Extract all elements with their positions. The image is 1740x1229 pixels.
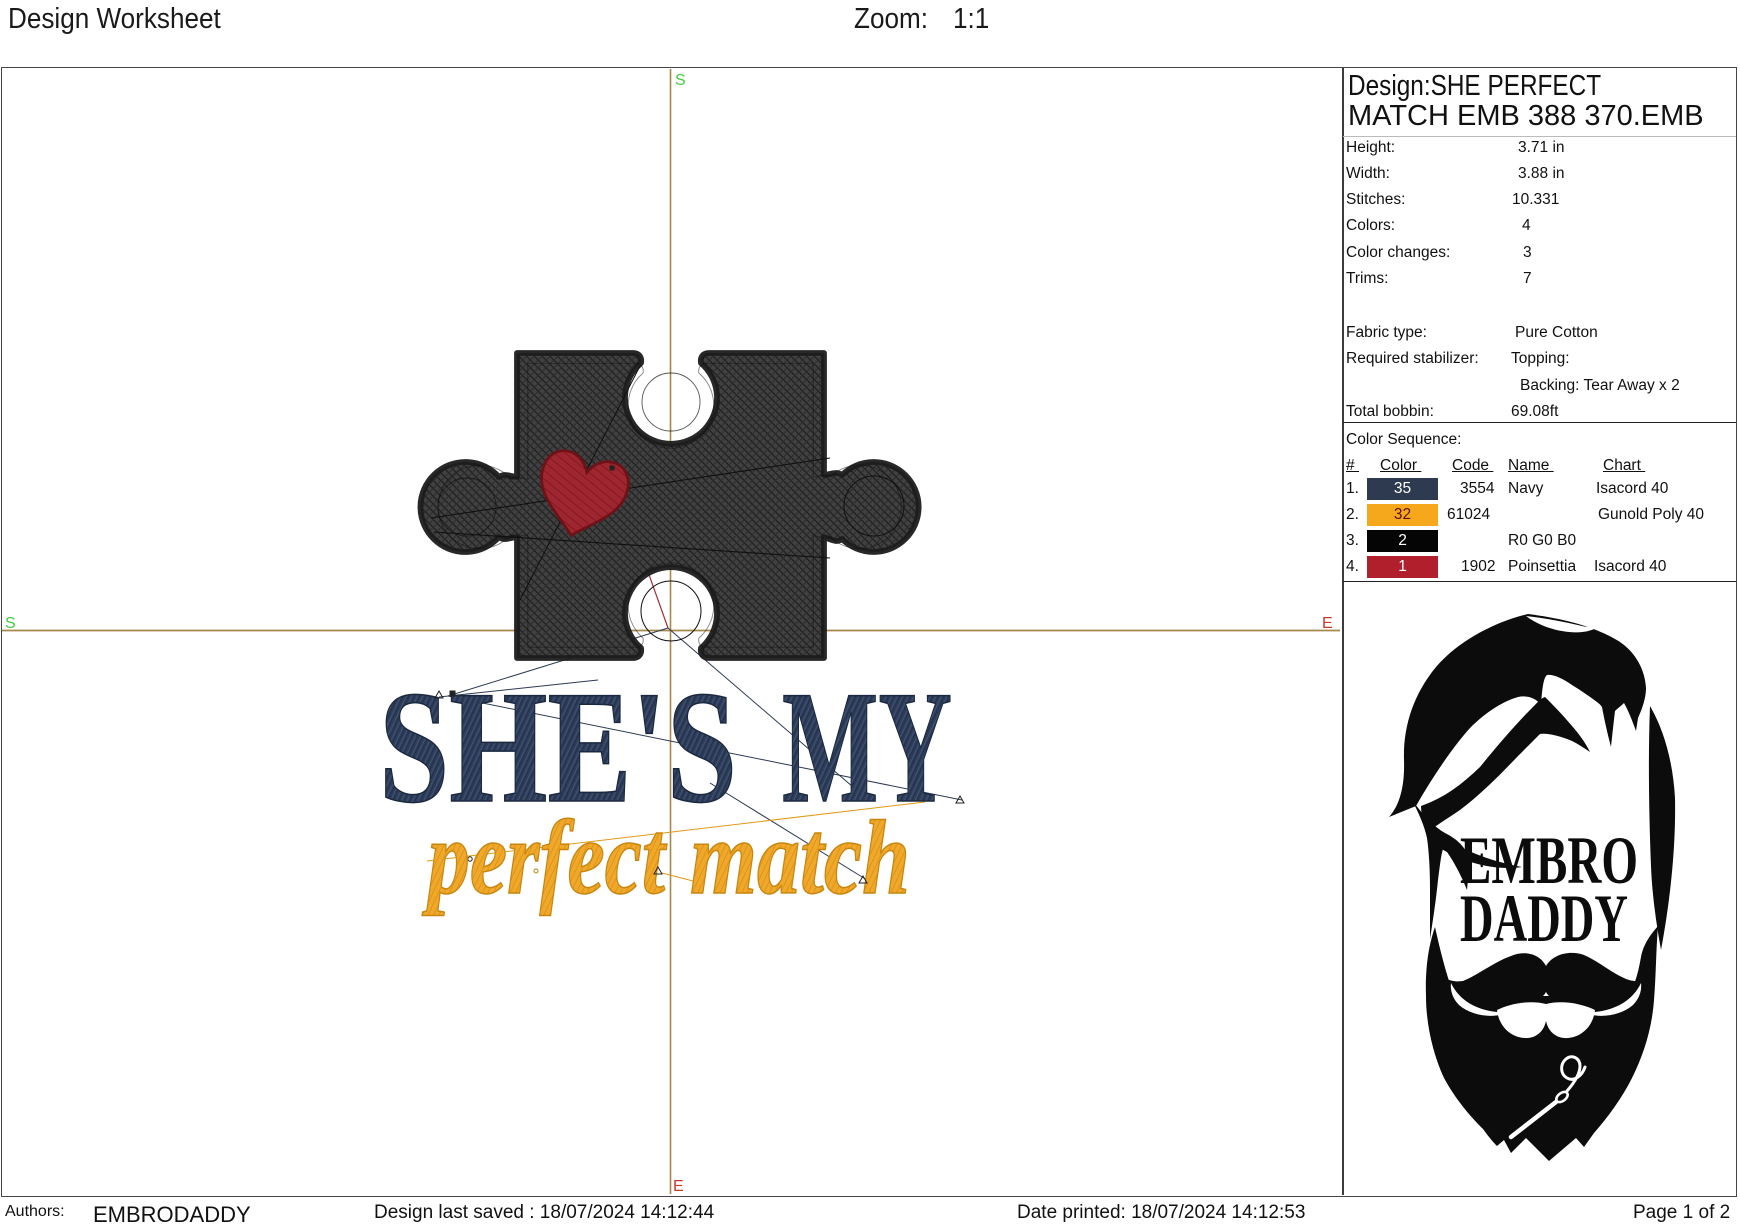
svg-text:DADDY: DADDY: [1460, 880, 1628, 956]
svg-text:E: E: [1322, 615, 1333, 632]
svg-text:perfect: perfect: [422, 799, 668, 916]
svg-text:S: S: [675, 72, 686, 89]
svg-text:match: match: [690, 799, 910, 916]
svg-text:S: S: [5, 615, 16, 632]
svg-text:E: E: [673, 1178, 684, 1195]
